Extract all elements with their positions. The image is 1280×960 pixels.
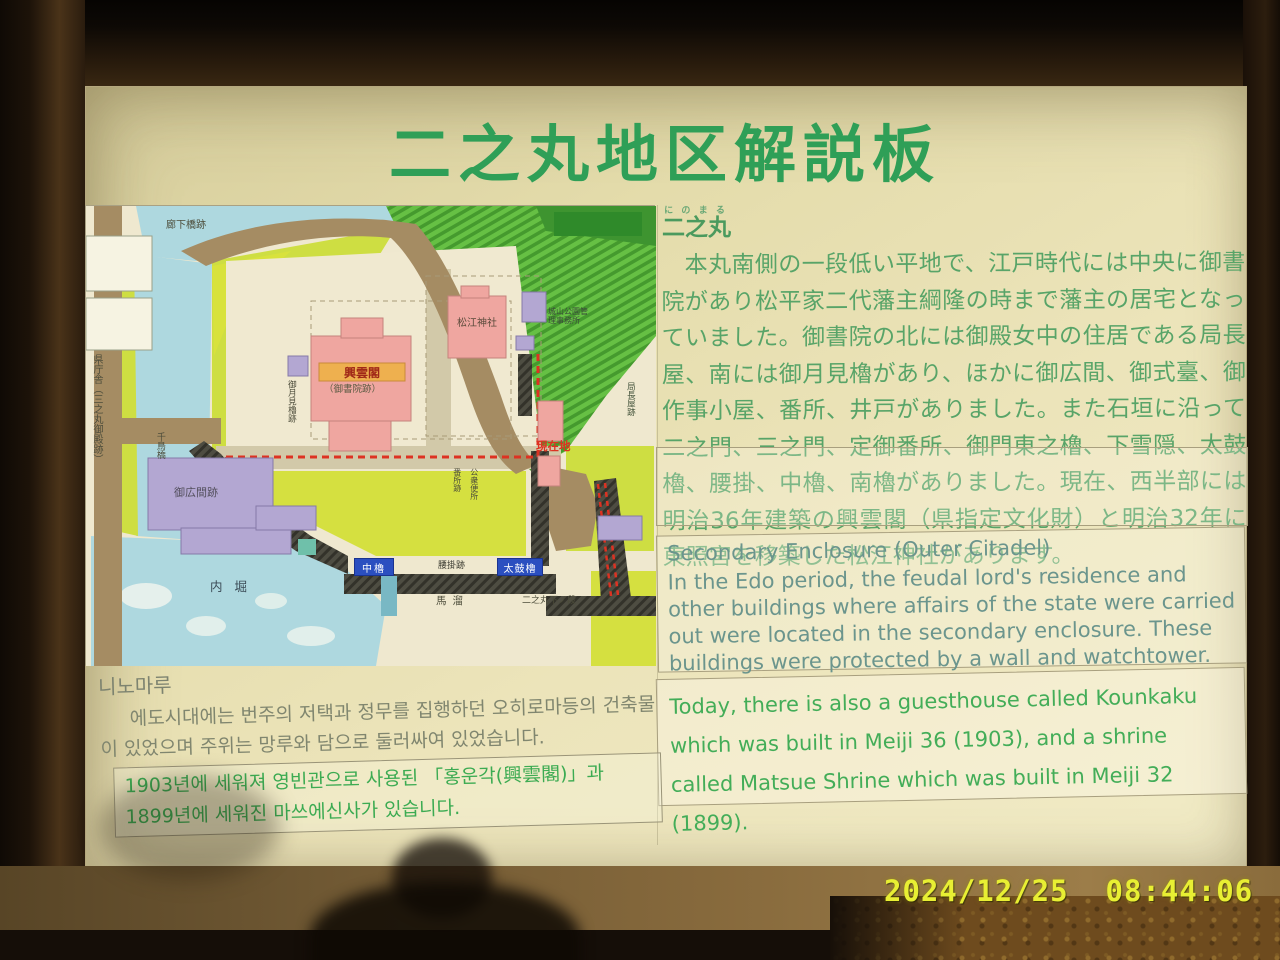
english-block-2: Today, there is also a guesthouse called… — [656, 667, 1248, 806]
map-label-kounkaku: 興雲閣 — [319, 363, 405, 381]
wooden-frame-left — [0, 0, 85, 960]
map-label-matsue-shrine: 松江神社 — [449, 318, 505, 329]
english-body: In the Edo period, the feudal lord's res… — [668, 562, 1236, 675]
japanese-heading-furigana: にのまる — [662, 206, 731, 216]
camera-timestamp: 2024/12/25 08:44:06 — [884, 874, 1253, 908]
map-label-lower-terrace: 二之丸下ノ段 — [522, 597, 576, 607]
map-label-goshoin-site: （御書院跡） — [324, 385, 381, 395]
korean-heading: 니노마루 — [98, 669, 172, 700]
map-label-public-toilet: 公衆便所 — [469, 468, 478, 500]
map-label-park-office: 城山公園管理事務所 — [548, 308, 592, 326]
map-label-horse-pool: 馬溜 — [436, 596, 469, 608]
wooden-frame-top — [0, 0, 1280, 88]
map-label-prefectural-office: 県庁舎（三之丸御殿跡） — [91, 354, 102, 464]
map-label-bansho: 番所跡 — [452, 468, 461, 492]
map-label-chidori-bridge: 千鳥橋 — [154, 432, 164, 459]
map-label-koshikake: 腰掛跡 — [438, 562, 465, 572]
map-label-corridor-bridge: 廊下橋跡 — [166, 220, 206, 231]
map-label-inner-moat: 内堀 — [210, 580, 259, 594]
map-label-tsukimi-yagura: 御月見櫓跡 — [286, 380, 295, 423]
english-block-1: Secondary Enclosure (Outer Citadel) In t… — [656, 526, 1247, 672]
ninomaru-map: 廊下橋跡 県庁舎（三之丸御殿跡） 千鳥橋 興雲閣 （御書院跡） 松江神社 御月見… — [85, 205, 655, 665]
photo-of-sign: 二之丸地区解説板 — [0, 0, 1280, 960]
japanese-heading-text: 二之丸 — [662, 215, 731, 241]
japanese-highlight-box — [656, 447, 1248, 526]
map-label-naka-yagura: 中櫓 — [354, 558, 394, 576]
map-label-ohiroma: 御広間跡 — [174, 487, 218, 499]
sign-title: 二之丸地区解説板 — [85, 104, 1245, 194]
japanese-heading-ruby: 二之丸にのまる — [662, 215, 731, 241]
japanese-body: 本丸南側の一段低い平地で、江戸時代には中央に御書院があり松平家二代藩主綱隆の時ま… — [661, 244, 1247, 576]
map-label-taiko-yagura: 太鼓櫓 — [497, 558, 543, 576]
map-label-tsubone-nagaya: 局長屋跡 — [625, 382, 634, 416]
wooden-frame-right — [1243, 0, 1280, 960]
japanese-heading: 二之丸にのまる — [662, 206, 731, 242]
shadow-on-panel — [100, 775, 280, 880]
map-label-current-location: 現在地 — [536, 440, 571, 453]
